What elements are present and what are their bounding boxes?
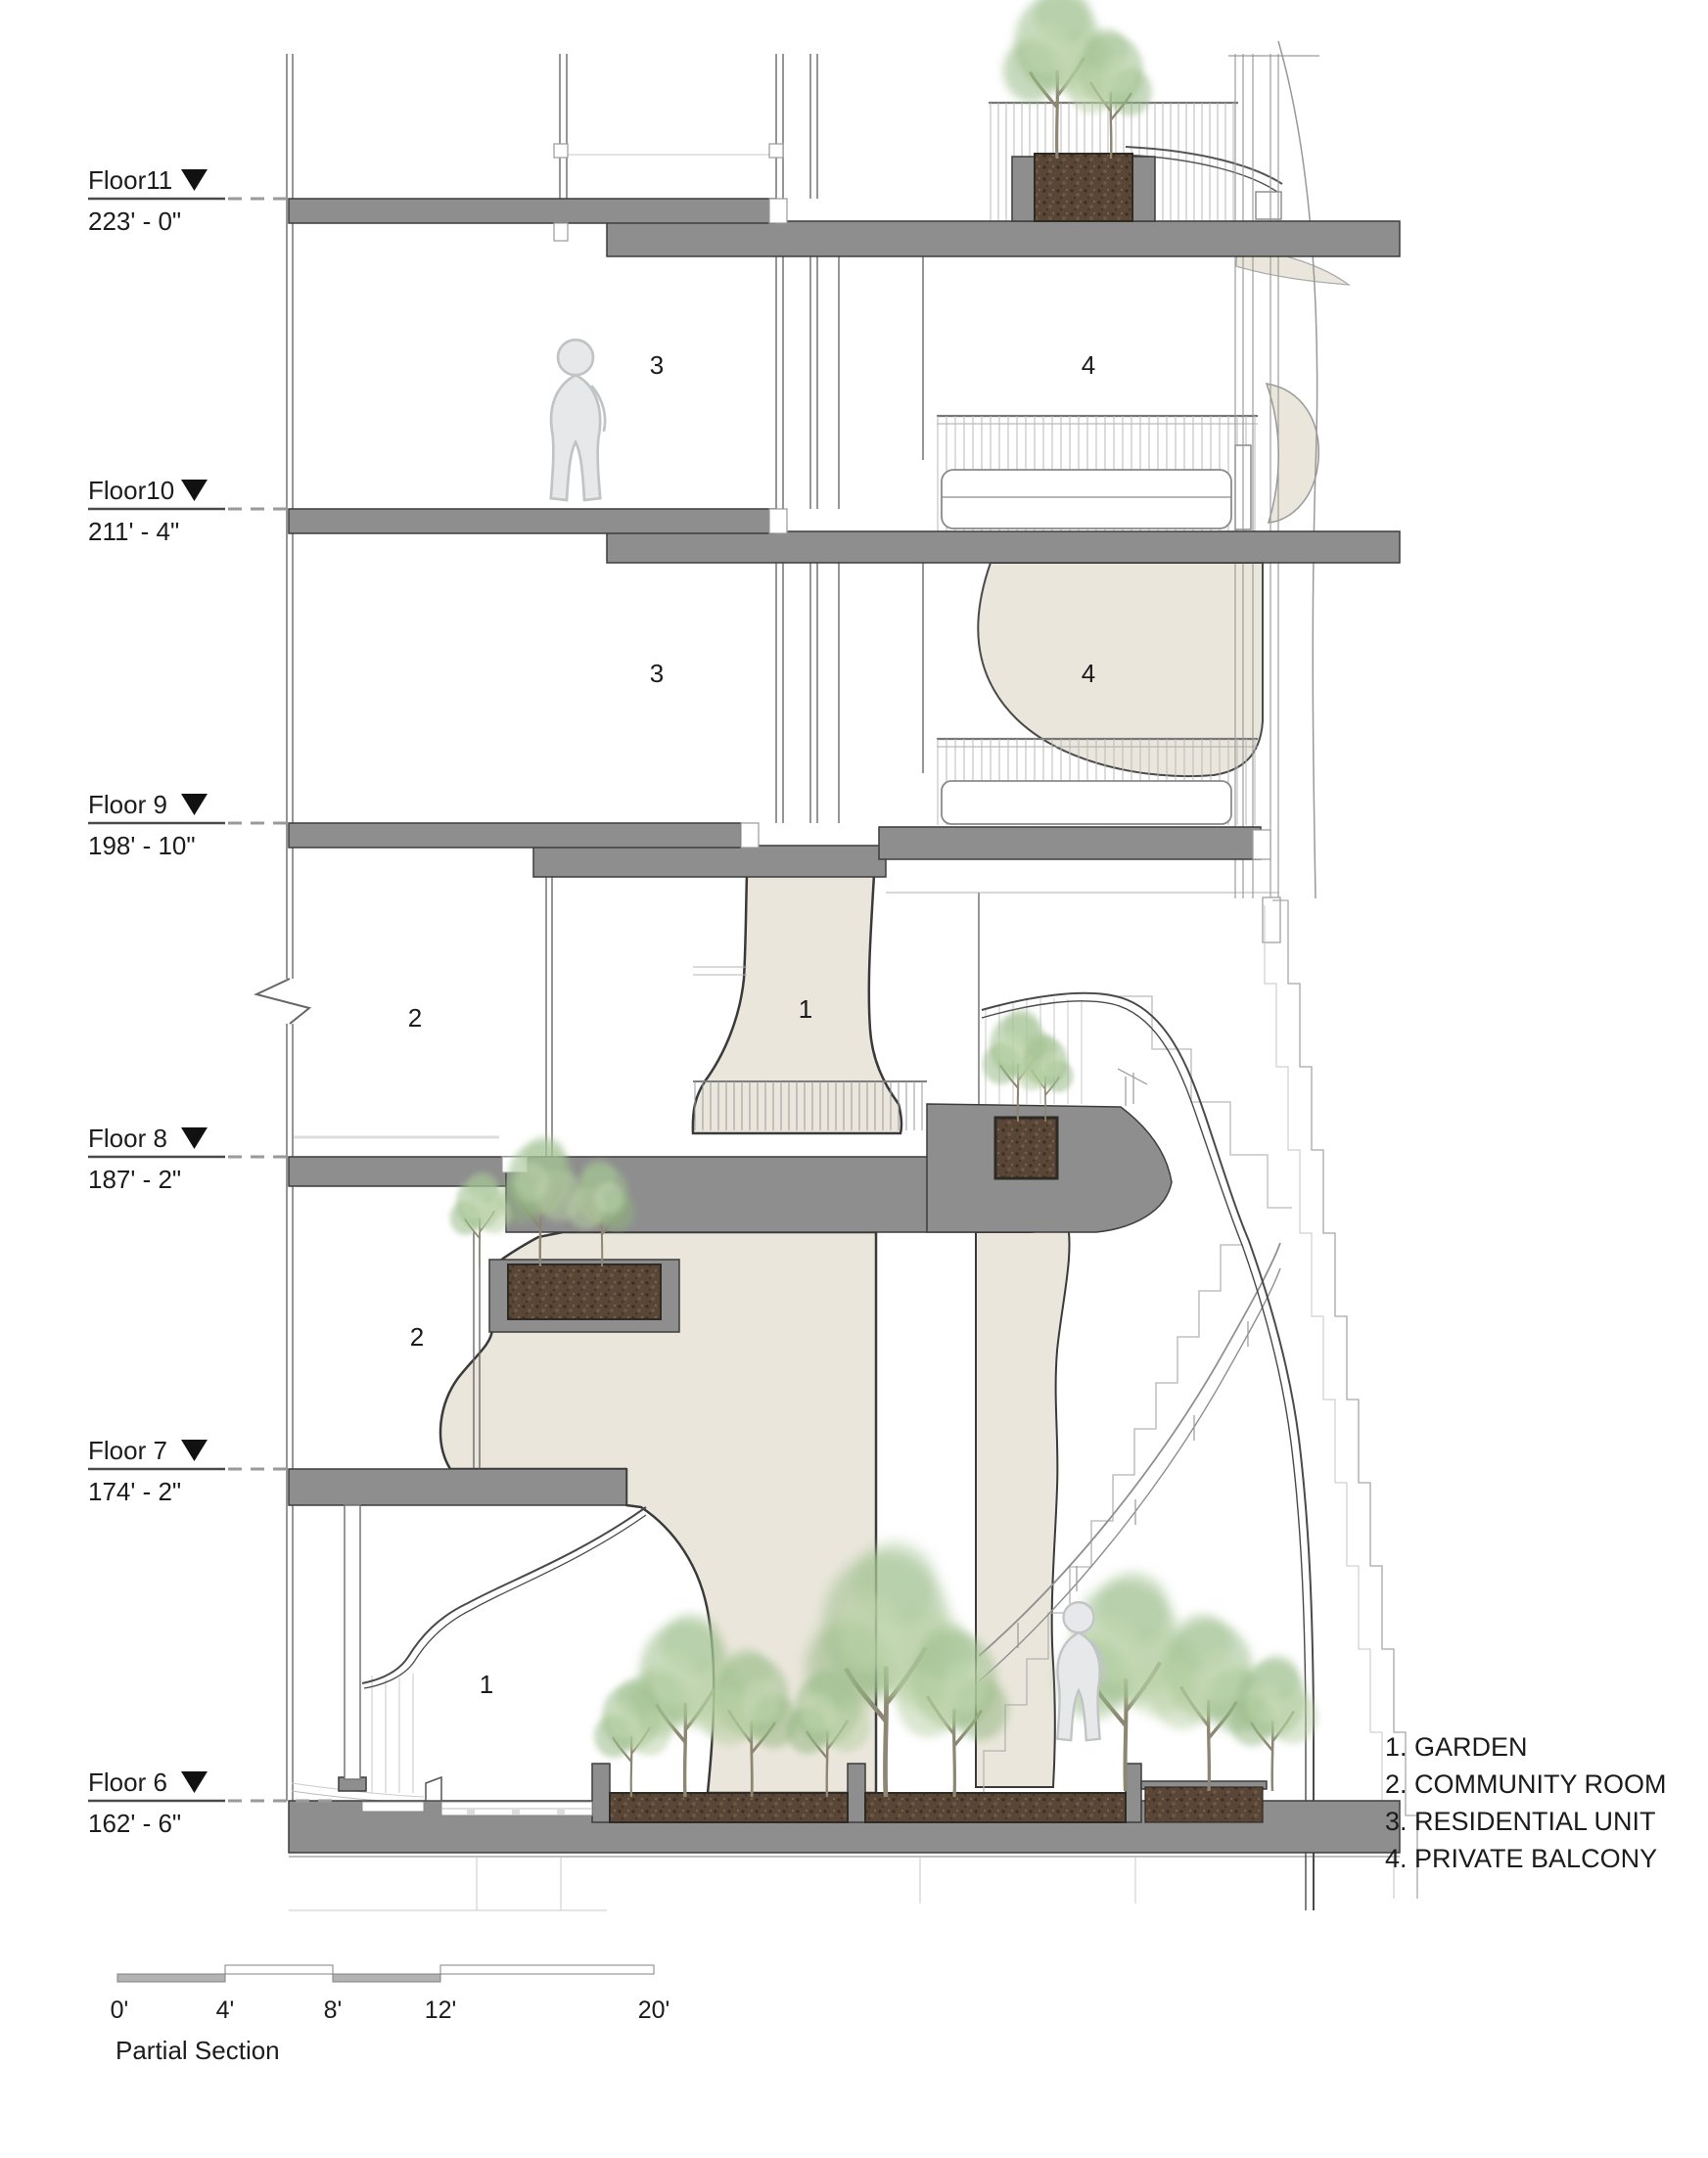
drawing-title: Partial Section — [115, 2036, 280, 2065]
floor-slab — [607, 221, 1400, 256]
floor-label: Floor 8 — [88, 1124, 167, 1153]
room-number-label: 4 — [1082, 659, 1095, 688]
scale-tick: 0' — [111, 1997, 129, 2024]
level-marker-icon — [181, 1440, 208, 1461]
floor-slab — [289, 823, 741, 848]
floor-slab — [289, 509, 775, 533]
break-mark — [256, 979, 309, 1024]
scale-tick: 8' — [324, 1997, 343, 2024]
floor-label: Floor 7 — [88, 1436, 167, 1465]
scale-tick: 12' — [425, 1997, 457, 2024]
legend-item: 3. RESIDENTIAL UNIT — [1385, 1807, 1656, 1836]
stepped-facade-inner — [1265, 905, 1394, 1899]
floor-slab — [607, 531, 1400, 563]
floor-elevation: 223' - 0" — [88, 207, 181, 236]
floor-slab — [289, 1469, 626, 1505]
room-number-label: 3 — [650, 350, 664, 380]
level-marker-icon — [181, 480, 208, 501]
floor-elevation: 211' - 4" — [88, 517, 179, 546]
floor-annotation: Floor10 211' - 4" — [88, 476, 292, 546]
trees — [450, 0, 1317, 1797]
legend-item: 2. COMMUNITY ROOM — [1385, 1769, 1667, 1799]
balcony-railing-floor10 — [937, 416, 1258, 531]
legend-item: 1. GARDEN — [1385, 1732, 1528, 1762]
floor-elevation: 187' - 2" — [88, 1165, 181, 1194]
bed-outline — [942, 470, 1231, 528]
person-figure — [551, 340, 605, 500]
floor-label: Floor11 — [88, 165, 172, 195]
soffit-curve-left-inner — [364, 1515, 646, 1688]
level-marker-icon — [181, 794, 208, 815]
room-number-label: 4 — [1082, 350, 1095, 380]
level-marker-icon — [181, 1127, 208, 1149]
floor-annotation: Floor 9 198' - 10" — [88, 790, 292, 860]
floor-annotations: Floor11 223' - 0" Floor10 211' - 4" Floo… — [88, 165, 338, 1838]
right-facade — [1228, 41, 1417, 1899]
floor-elevation: 162' - 6" — [88, 1809, 181, 1838]
floor-slab — [533, 846, 886, 877]
floor-label: Floor 9 — [88, 790, 167, 819]
room-number-label: 2 — [408, 1003, 422, 1033]
facade-lens-lower — [1267, 384, 1318, 523]
floor-annotation: Floor 7 174' - 2" — [88, 1436, 292, 1506]
room-number-label: 1 — [799, 994, 812, 1024]
section-drawing: Floor11 223' - 0" Floor10 211' - 4" Floo… — [0, 0, 1708, 2153]
floor-annotation: Floor11 223' - 0" — [88, 165, 292, 236]
floor-elevation: 198' - 10" — [88, 831, 196, 860]
soffit-curve-left — [362, 1507, 646, 1683]
level-marker-icon — [181, 1771, 208, 1793]
legend-item: 4. PRIVATE BALCONY — [1385, 1844, 1657, 1873]
scale-tick: 20' — [638, 1997, 670, 2024]
column — [345, 1505, 360, 1779]
floor6-details — [345, 1505, 592, 1815]
room-number-label: 1 — [480, 1670, 493, 1699]
floor-slab — [879, 827, 1261, 859]
floor-elevation: 174' - 2" — [88, 1477, 181, 1506]
room-number-label: 3 — [650, 659, 664, 688]
floor-annotation: Floor 8 187' - 2" — [88, 1124, 292, 1194]
scale-bar: 0' 4' 8' 12' 20' Partial Section — [111, 1965, 670, 2065]
legend: 1. GARDEN 2. COMMUNITY ROOM 3. RESIDENTI… — [1385, 1732, 1667, 1873]
room-number-label: 2 — [410, 1322, 424, 1352]
floor-label: Floor 6 — [88, 1768, 167, 1797]
bed-outline — [942, 781, 1231, 824]
floor-label: Floor10 — [88, 476, 174, 505]
floor-slab — [289, 199, 775, 223]
level-marker-icon — [181, 169, 208, 191]
scale-tick: 4' — [216, 1997, 235, 2024]
